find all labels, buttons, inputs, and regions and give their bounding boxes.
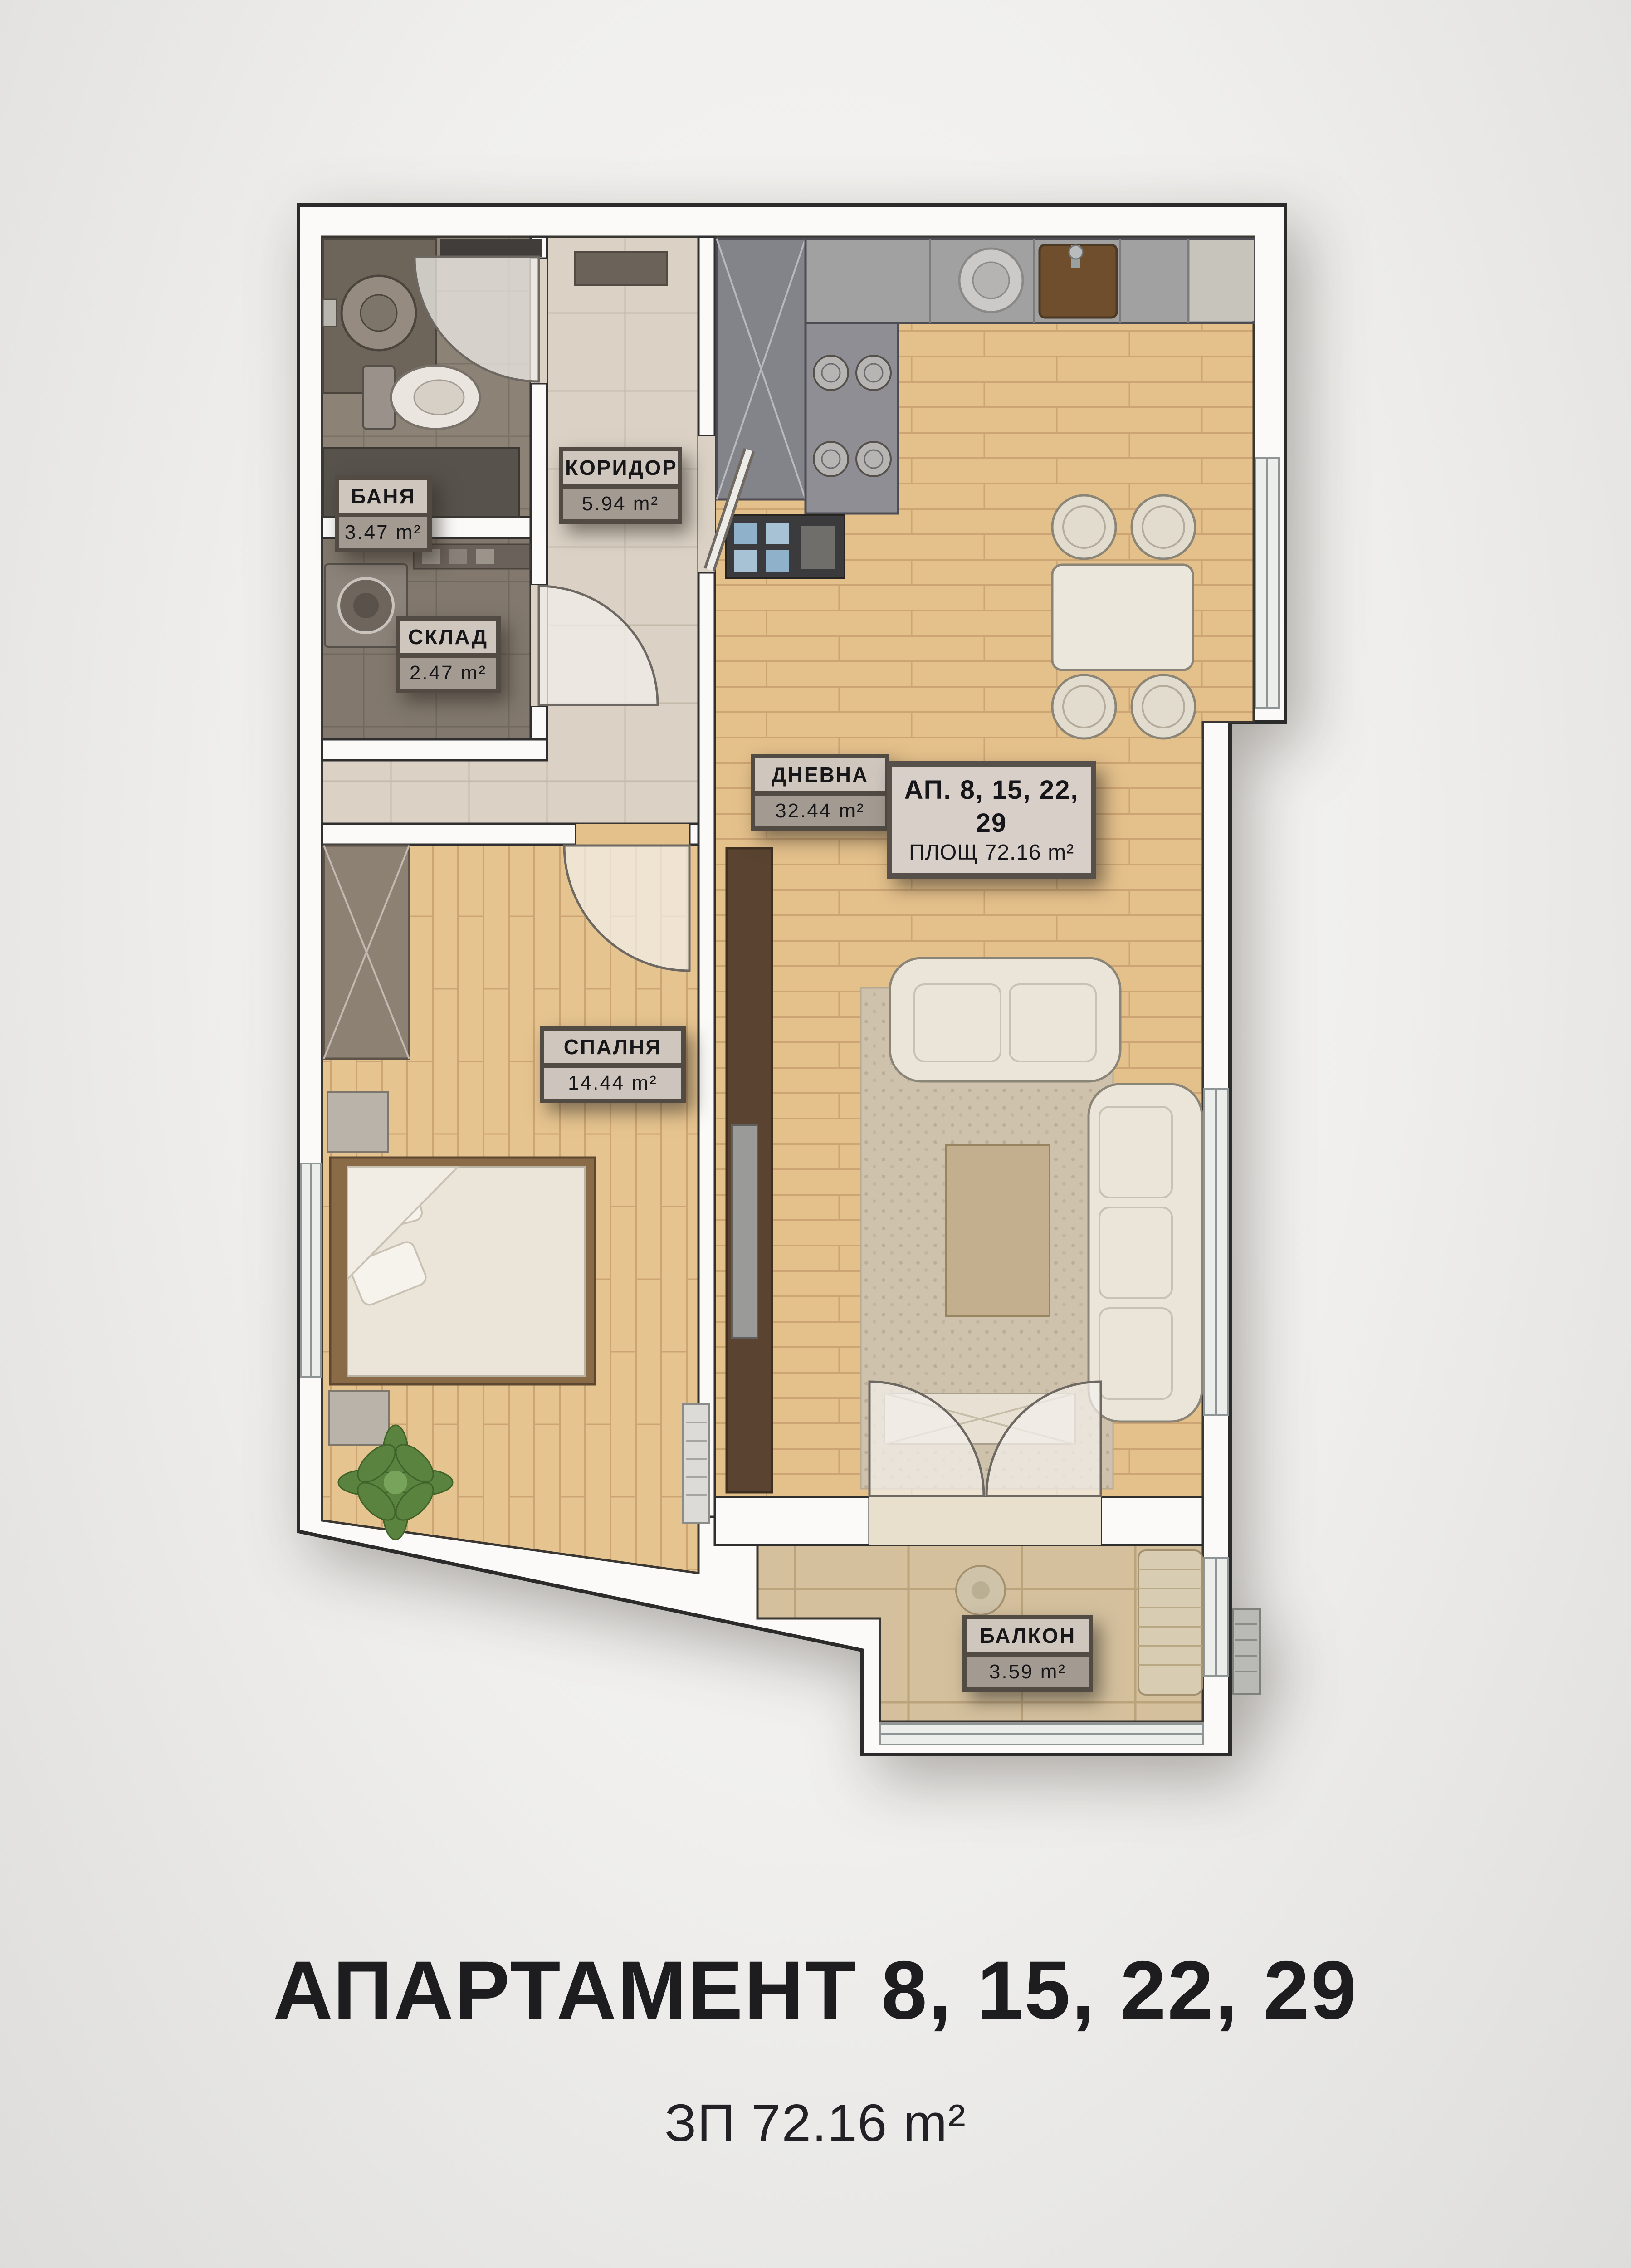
- sofa-two-seat: [890, 958, 1120, 1081]
- label-storage-area: 2.47 m²: [400, 658, 496, 689]
- page-subtitle: ЗП 72.16 m²: [0, 2097, 1631, 2149]
- label-storage: СКЛАД 2.47 m²: [396, 616, 501, 693]
- tv-unit: [727, 848, 772, 1492]
- kitchen-cooktop: [806, 323, 898, 513]
- label-corridor-name: КОРИДОР: [563, 451, 678, 484]
- unit-tag: АП. 8, 15, 22, 29 ПЛОЩ 72.16 m²: [887, 761, 1096, 879]
- label-balcony-name: БАЛКОН: [967, 1619, 1089, 1652]
- label-balcony-area: 3.59 m²: [967, 1657, 1089, 1687]
- ac-unit: [1233, 1609, 1260, 1694]
- radiator: [683, 1404, 709, 1523]
- label-corridor-area: 5.94 m²: [563, 489, 678, 519]
- coffee-table: [946, 1145, 1050, 1316]
- lounge-chair: [1138, 1550, 1202, 1695]
- label-storage-name: СКЛАД: [400, 621, 496, 653]
- page: БАНЯ 3.47 m² КОРИДОР 5.94 m² СКЛАД 2.47 …: [0, 0, 1631, 2268]
- kitchen-tall-cabinet: [717, 239, 806, 499]
- bed: [330, 1158, 595, 1384]
- sofa-three-seat: [1089, 1084, 1202, 1422]
- kitchen-bar-unit: [726, 515, 845, 578]
- label-bedroom-area: 14.44 m²: [544, 1068, 681, 1099]
- storage-washing-machine: [325, 564, 407, 647]
- nightstand-top: [327, 1092, 388, 1152]
- label-living-area: 32.44 m²: [755, 796, 885, 826]
- nightstand-bottom: [329, 1391, 389, 1445]
- entry-doormat: [575, 252, 667, 285]
- label-living: ДНЕВНА 32.44 m²: [751, 754, 889, 831]
- unit-tag-area: ПЛОЩ 72.16 m²: [901, 840, 1082, 866]
- bathroom-mirror: [440, 239, 542, 257]
- tv-screen: [732, 1125, 757, 1338]
- label-bathroom-name: БАНЯ: [339, 480, 427, 513]
- label-living-name: ДНЕВНА: [755, 758, 885, 791]
- label-bedroom-name: СПАЛНЯ: [544, 1031, 681, 1063]
- dining-table: [1052, 565, 1193, 670]
- label-bathroom-area: 3.47 m²: [339, 517, 427, 548]
- kitchen-counter: [806, 239, 1254, 323]
- label-bedroom: СПАЛНЯ 14.44 m²: [540, 1026, 686, 1103]
- label-bathroom: БАНЯ 3.47 m²: [335, 475, 432, 552]
- wardrobe: [324, 846, 409, 1059]
- label-balcony: БАЛКОН 3.59 m²: [962, 1615, 1093, 1692]
- unit-tag-number: АП. 8, 15, 22, 29: [901, 774, 1082, 840]
- toilet: [363, 366, 480, 429]
- label-corridor: КОРИДОР 5.94 m²: [559, 447, 682, 524]
- balcony-table: [956, 1566, 1005, 1615]
- page-title: АПАРТАМЕНТ 8, 15, 22, 29: [0, 1949, 1631, 2031]
- floor-plan: [0, 0, 1631, 2268]
